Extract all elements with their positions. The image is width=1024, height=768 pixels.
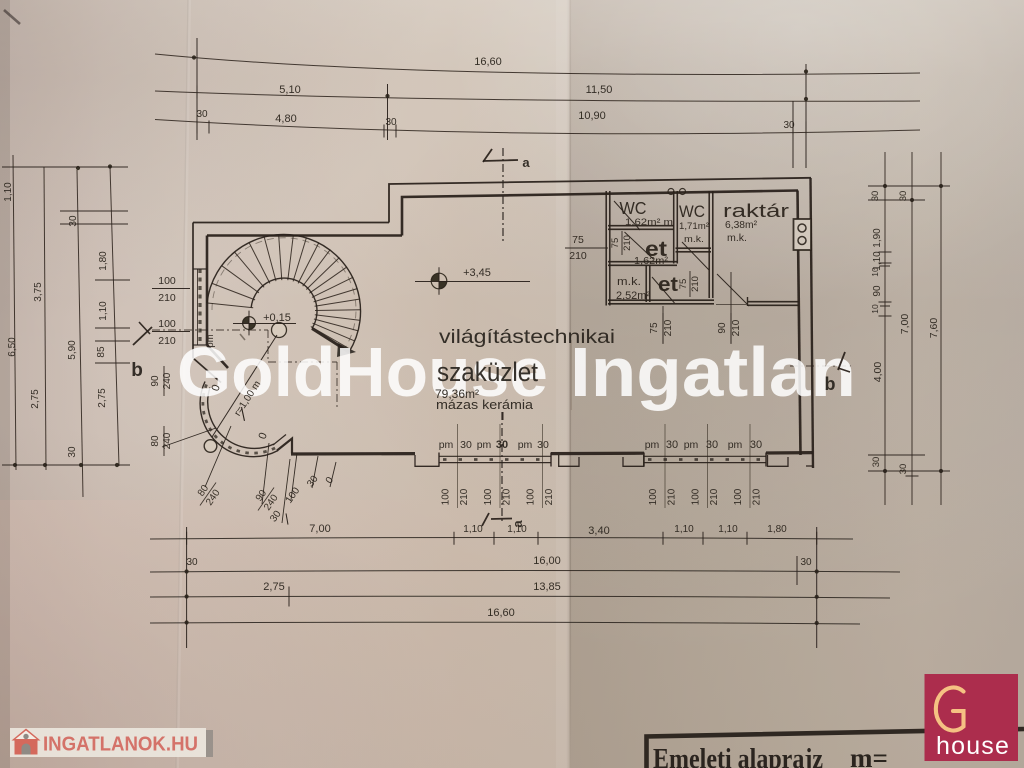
svg-text:1,10: 1,10 [718,524,738,535]
svg-text:WC: WC [620,198,647,218]
svg-text:1,10: 1,10 [98,301,109,321]
svg-text:30: 30 [800,557,812,568]
svg-text:100: 100 [648,488,659,505]
svg-text:szaküzlet: szaküzlet [437,357,538,387]
svg-text:4,00: 4,00 [872,362,884,383]
svg-text:m.k.: m.k. [727,233,747,244]
svg-text:2,75: 2,75 [30,389,41,409]
svg-text:pm: pm [728,439,743,451]
svg-text:30: 30 [898,191,909,202]
svg-text:1,80: 1,80 [767,524,787,535]
svg-text:5,10: 5,10 [279,84,300,96]
svg-text:210: 210 [709,488,720,505]
svg-text:240: 240 [162,372,173,389]
svg-text:13,85: 13,85 [533,581,561,593]
svg-text:pm: pm [477,439,492,451]
svg-text:11,50: 11,50 [586,84,613,96]
svg-text:75: 75 [649,322,660,334]
svg-text:210: 210 [690,276,701,292]
svg-text:1,10: 1,10 [3,182,14,202]
svg-text:m=: m= [850,743,888,768]
svg-text:6,50: 6,50 [7,337,18,357]
svg-text:100: 100 [526,488,537,505]
svg-text:7,00: 7,00 [899,314,911,335]
svg-text:1,62m² m: 1,62m² m [625,217,673,228]
svg-text:WC: WC [679,203,705,221]
svg-text:210: 210 [158,292,176,304]
svg-text:100: 100 [441,488,452,505]
svg-text:3,40: 3,40 [588,525,609,537]
svg-text:világítástechnikai: világítástechnikai [439,326,615,348]
svg-text:30: 30 [496,439,508,451]
svg-text:100: 100 [158,318,176,330]
svg-text:a: a [522,155,530,170]
svg-text:6,38m²: 6,38m² [725,220,758,231]
svg-text:30: 30 [898,464,909,475]
svg-text:30: 30 [68,215,79,227]
svg-text:30: 30 [871,457,882,468]
svg-text:30: 30 [196,109,208,120]
svg-text:210: 210 [667,488,678,505]
svg-text:16,00: 16,00 [533,555,561,567]
svg-text:30: 30 [186,557,198,568]
svg-text:m.k.: m.k. [617,276,641,288]
svg-text:pm: pm [645,439,660,451]
svg-text:5,90: 5,90 [67,340,78,360]
svg-text:et: et [658,274,678,296]
svg-text:90: 90 [150,375,161,387]
svg-text:b: b [825,374,836,394]
svg-text:75: 75 [572,234,584,246]
svg-text:3,75: 3,75 [33,282,44,302]
svg-text:30: 30 [67,446,78,458]
svg-text:90: 90 [717,322,728,334]
svg-text:210: 210 [752,488,763,505]
svg-text:210: 210 [569,250,587,262]
svg-text:2,52m²: 2,52m² [616,290,650,302]
svg-text:1,80: 1,80 [98,251,109,271]
svg-text:10: 10 [870,267,880,277]
svg-text:7,00: 7,00 [309,523,330,535]
svg-text:b: b [131,360,143,381]
svg-text:90: 90 [872,285,883,297]
svg-text:30: 30 [783,120,795,131]
svg-text:10,90: 10,90 [578,110,606,122]
svg-text:100: 100 [483,488,494,505]
svg-text:100: 100 [691,488,702,505]
svg-text:85: 85 [96,346,107,358]
svg-text:210: 210 [158,335,176,347]
svg-text:75: 75 [678,279,689,290]
svg-text:100: 100 [158,275,176,287]
svg-text:1,90: 1,90 [872,228,883,248]
svg-text:30: 30 [666,439,678,451]
svg-text:4,80: 4,80 [275,113,296,125]
svg-text:30: 30 [385,117,397,128]
svg-text:INGATLANOK.HU: INGATLANOK.HU [43,733,198,756]
svg-text:1,10: 1,10 [674,524,694,535]
svg-text:2,75: 2,75 [97,388,108,408]
svg-text:1,62m²: 1,62m² [634,256,669,267]
svg-text:a: a [510,520,525,528]
svg-text:30: 30 [870,191,881,202]
svg-text:house: house [936,732,1010,760]
svg-text:raktár: raktár [723,201,789,221]
svg-text:210: 210 [622,235,633,251]
svg-text:pm: pm [439,439,454,451]
svg-text:mázas kerámia: mázas kerámia [436,397,534,412]
svg-text:100: 100 [733,488,744,505]
svg-text:2,75: 2,75 [263,581,284,593]
svg-text:210: 210 [731,319,742,336]
svg-text:210: 210 [459,488,470,505]
svg-text:210: 210 [663,319,674,336]
svg-text:16,60: 16,60 [474,56,502,68]
svg-text:30: 30 [706,439,718,451]
svg-text:Emeleti alaprajz: Emeleti alaprajz [653,743,823,768]
svg-text:10: 10 [870,304,880,314]
svg-text:pm: pm [684,439,699,451]
svg-text:7,60: 7,60 [928,318,940,339]
svg-text:80: 80 [150,435,161,447]
svg-text:210: 210 [544,488,555,505]
svg-text:30: 30 [750,439,762,451]
svg-text:1,71m²: 1,71m² [679,221,709,232]
svg-text:+0,15: +0,15 [263,312,291,324]
svg-text:75: 75 [610,238,621,249]
svg-text:30: 30 [460,439,472,451]
svg-text:pm: pm [518,439,533,451]
svg-text:210: 210 [502,488,513,505]
svg-text:16,60: 16,60 [487,607,515,619]
svg-text:30: 30 [537,439,549,451]
svg-text:1,10: 1,10 [463,524,483,535]
svg-text:+3,45: +3,45 [463,267,491,279]
svg-text:m.k.: m.k. [684,234,704,245]
